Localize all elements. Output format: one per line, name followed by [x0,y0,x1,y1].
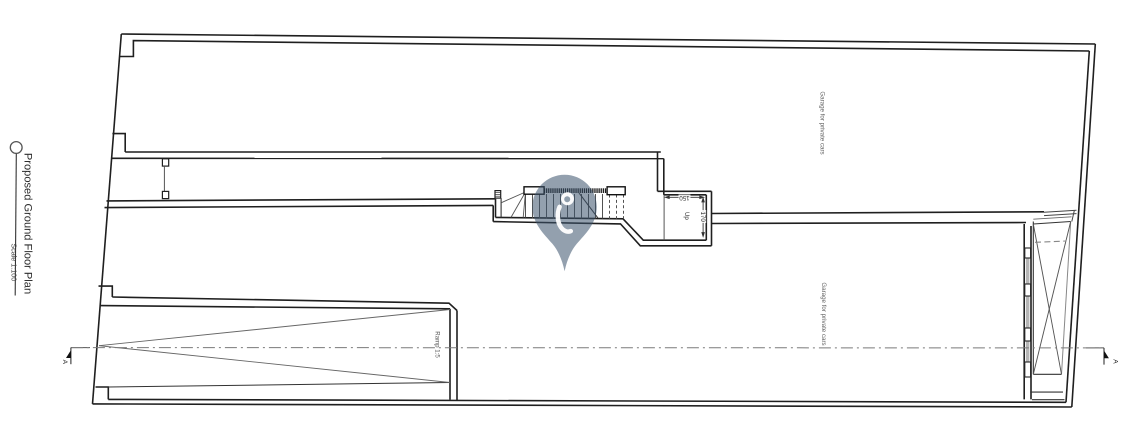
svg-text:Proposed Ground Floor Plan: Proposed Ground Floor Plan [22,153,34,294]
svg-text:150: 150 [679,194,690,201]
svg-text:170: 170 [699,211,706,222]
svg-text:Garage for private cars: Garage for private cars [820,282,827,345]
svg-text:A: A [1111,359,1118,364]
svg-text:Ramp 1:5: Ramp 1:5 [433,331,440,358]
svg-text:Scale 1:100: Scale 1:100 [10,243,19,281]
svg-text:Garage for private cars: Garage for private cars [819,91,826,154]
svg-text:A: A [61,360,68,365]
svg-text:Up: Up [683,212,690,220]
